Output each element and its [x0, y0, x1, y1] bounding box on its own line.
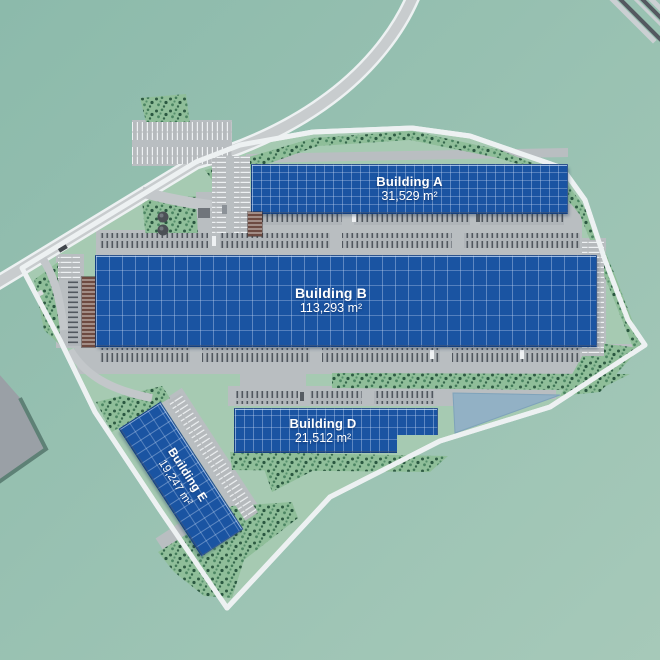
building-d-label: Building D [290, 416, 357, 431]
building-b-office-section [82, 277, 95, 347]
building-a[interactable]: Building A 31,529 m² [251, 164, 568, 214]
building-a-office-section [248, 212, 262, 236]
building-b-label: Building B [295, 286, 367, 301]
building-b-area: 113,293 m² [300, 301, 362, 316]
site-plan-map: Building A 31,529 m² Building B 113,293 … [0, 0, 660, 660]
sprinkler-tank [158, 212, 169, 223]
building-b[interactable]: Building B 113,293 m² [95, 255, 597, 347]
utility-shed [198, 208, 210, 218]
building-a-area: 31,529 m² [381, 189, 437, 204]
building-d-area: 21,512 m² [295, 431, 351, 446]
building-a-label: Building A [376, 174, 443, 189]
sprinkler-tank [158, 225, 169, 236]
